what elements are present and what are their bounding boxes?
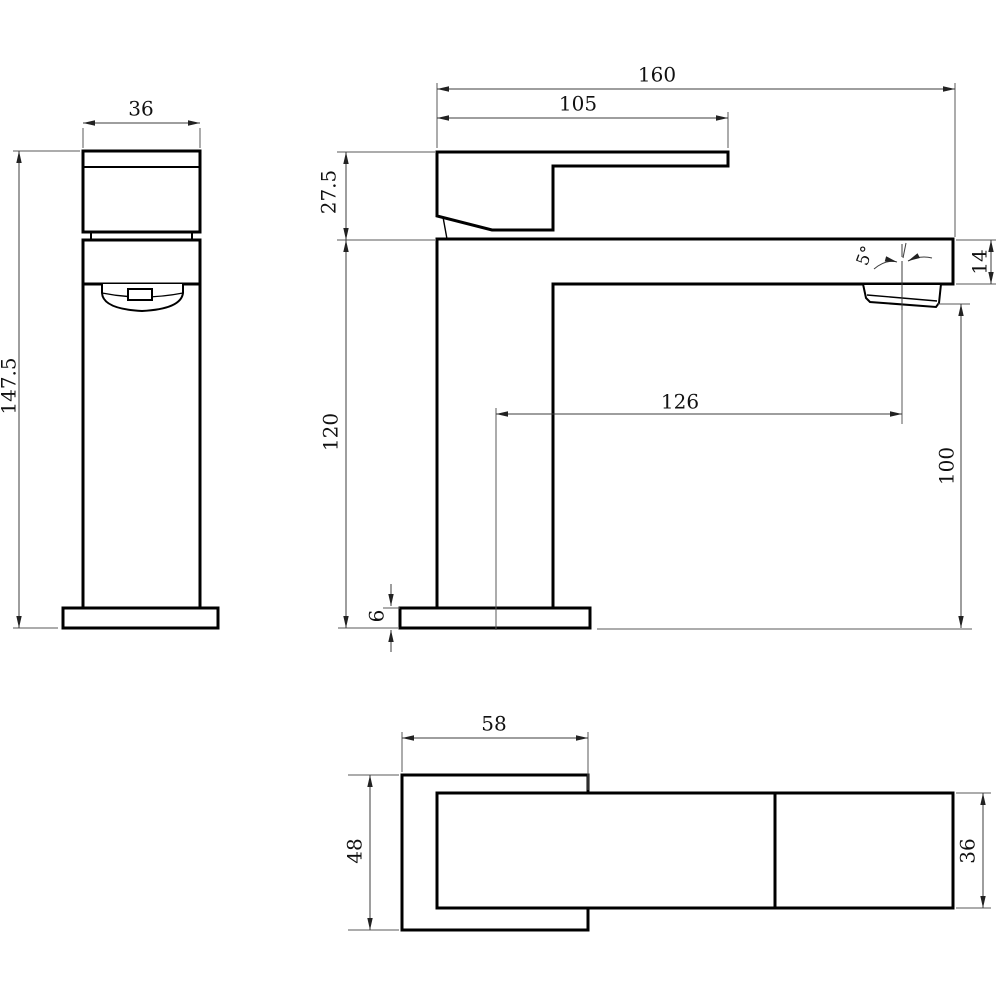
faucet-technical-drawing: 36 147.5 160 [0,0,1000,1000]
dim-label-body-height: 120 [319,413,343,451]
dim-top-spout-width: 36 [956,793,992,908]
dim-side-base-thickness: 6 [365,584,401,652]
dim-label-base-thickness: 6 [365,610,389,623]
side-handle-outline [437,152,728,230]
dim-label-total-length: 160 [638,63,676,87]
side-view: 160 105 27.5 120 6 [317,63,997,653]
dim-side-spout-reach: 126 [496,310,902,630]
front-aerator-knob [128,289,152,300]
dim-label-front-height: 147.5 [0,357,21,414]
dim-label-spout-end-height: 14 [968,249,992,274]
dim-label-base-length: 58 [481,712,506,736]
top-view: 58 48 36 [343,712,992,931]
dim-side-outlet-clearance: 100 [597,304,972,629]
dim-label-handle-height: 27.5 [317,170,341,215]
dim-side-handle-length: 105 [437,92,728,149]
dim-side-handle-height: 27.5 [317,152,436,240]
dim-label-front-width: 36 [128,97,153,121]
front-base-plate [63,608,218,628]
dim-top-base-width: 48 [343,775,400,930]
dim-front-height: 147.5 [0,151,80,628]
top-spout-body [437,793,953,908]
dim-label-outlet-clearance: 100 [935,447,959,485]
front-handle-block [83,151,200,232]
dim-label-handle-length: 105 [559,92,597,116]
dim-side-body-height: 120 [319,240,399,628]
side-base-plate [400,608,590,628]
front-view: 36 147.5 [0,97,218,629]
dim-top-base-length: 58 [402,712,588,791]
dim-side-spout-end-height: 14 [956,240,996,284]
dim-label-spout-width: 36 [956,838,980,863]
drawing-sheet: 36 147.5 160 [0,0,1000,1000]
dim-label-spout-reach: 126 [661,390,699,414]
dim-label-base-width: 48 [343,838,367,863]
dim-front-width: 36 [83,97,200,149]
side-handle-joint-line [443,217,447,239]
